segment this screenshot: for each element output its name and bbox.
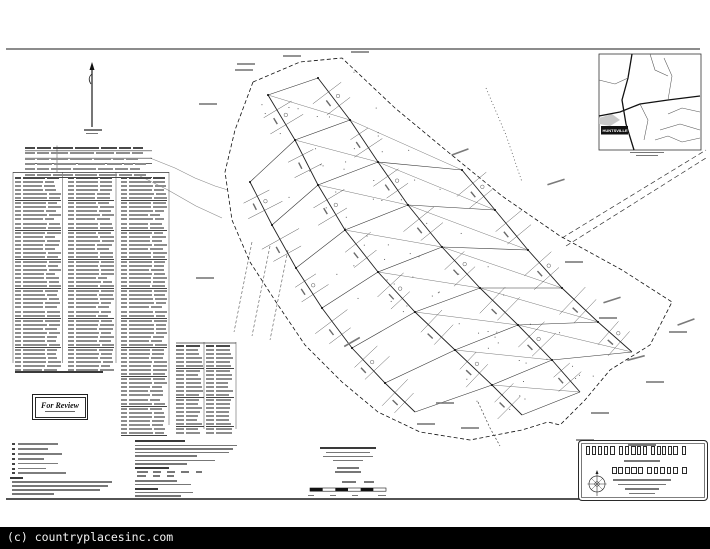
survey-data-table [15, 176, 61, 372]
table-cell-illegible [101, 320, 112, 322]
table-cell-illegible [129, 403, 152, 405]
table-cell-illegible [152, 420, 165, 422]
table-cell-illegible [129, 324, 154, 326]
table-cell-illegible [97, 244, 111, 246]
table-cell-illegible [15, 336, 21, 338]
table-cell-illegible [76, 185, 98, 187]
table-cell-illegible [15, 197, 21, 199]
table-cell-illegible [23, 298, 47, 300]
table-cell-illegible [15, 344, 21, 346]
table-cell-illegible [129, 420, 150, 422]
table-cell-illegible [216, 394, 229, 396]
table-cell-illegible [23, 306, 43, 308]
table-cell-illegible [23, 328, 43, 330]
table-cell-illegible [129, 223, 148, 225]
table-cell-illegible [121, 365, 127, 367]
table-cell-illegible [129, 244, 152, 246]
table-cell-illegible [23, 273, 44, 275]
table-cell-illegible [15, 218, 21, 220]
table-header-cell-illegible [176, 345, 184, 347]
table-cell-illegible [206, 428, 214, 430]
text-line-illegible [323, 456, 373, 458]
table-cell-illegible [76, 202, 96, 204]
table-cell-illegible [23, 302, 43, 304]
table-cell-illegible [156, 332, 167, 334]
table-cell-illegible [121, 311, 127, 313]
table-cell-illegible [15, 361, 21, 363]
table-cell-illegible [97, 248, 109, 250]
table-cell-illegible [76, 302, 99, 304]
table-cell-illegible [15, 252, 21, 254]
text-line-illegible [135, 440, 185, 442]
table-cell-illegible [150, 223, 162, 225]
table-cell-illegible [129, 378, 151, 380]
table-cell-illegible [25, 168, 35, 170]
for-review-stamp: For Review [32, 394, 88, 420]
table-cell-illegible [15, 189, 21, 191]
table-cell-illegible [216, 432, 232, 434]
table-cell-illegible [98, 277, 108, 279]
table-cell-illegible [129, 332, 154, 334]
table-cell-illegible [68, 265, 74, 267]
stamp-subtext-illegible [45, 411, 75, 412]
table-cell-illegible [70, 152, 93, 154]
table-cell-illegible [45, 302, 60, 304]
table-cell-illegible [76, 189, 98, 191]
table-cell-illegible [76, 357, 98, 359]
table-cell-illegible [51, 152, 69, 154]
table-cell-illegible [76, 227, 98, 229]
table-cell-illegible [68, 214, 74, 216]
table-cell-illegible [121, 328, 127, 330]
stamp-label: For Review [41, 402, 79, 410]
table-cell-illegible [23, 269, 47, 271]
table-cell-illegible [186, 349, 198, 351]
table-cell-illegible [186, 403, 198, 405]
survey-data-table [176, 344, 204, 435]
table-cell-illegible [49, 193, 61, 195]
table-cell-illegible [68, 256, 74, 258]
table-cell-illegible [129, 214, 148, 216]
table-cell-illegible [124, 163, 134, 165]
text-line-illegible [135, 452, 229, 454]
table-cell-illegible [129, 386, 150, 388]
table-header-cell-illegible [25, 147, 35, 149]
table-cell-illegible [76, 365, 99, 367]
table-cell-illegible [216, 428, 232, 430]
table-cell-illegible [206, 349, 214, 351]
table-cell-illegible [47, 294, 57, 296]
table-cell-illegible [100, 206, 114, 208]
table-cell-illegible [100, 227, 114, 229]
table-cell-illegible [68, 369, 74, 371]
table-cell-illegible [23, 244, 43, 246]
text-line-illegible [135, 448, 233, 450]
table-cell-illegible [206, 378, 214, 380]
table-cell-illegible [45, 236, 55, 238]
table-cell-illegible [156, 315, 165, 317]
table-cell-illegible [129, 320, 152, 322]
table-cell-illegible [23, 294, 45, 296]
table-cell-illegible [45, 218, 54, 220]
table-cell-illegible [51, 168, 71, 170]
table-cell-illegible [23, 281, 47, 283]
table-cell-illegible [48, 361, 61, 363]
table-cell-illegible [68, 223, 74, 225]
table-cell-illegible [176, 415, 184, 417]
table-cell-illegible [76, 290, 99, 292]
table-cell-illegible [129, 206, 151, 208]
table-cell-illegible [216, 365, 231, 367]
table-cell-illegible [186, 353, 199, 355]
table-cell-illegible [156, 328, 166, 330]
table-cell-illegible [37, 163, 52, 165]
table-cell-illegible [129, 361, 153, 363]
table-cell-illegible [48, 202, 57, 204]
table-cell-illegible [97, 193, 110, 195]
legend-item-text-illegible [18, 443, 58, 445]
table-cell-illegible [101, 273, 114, 275]
table-cell-illegible [23, 256, 45, 258]
table-cell-illegible [23, 227, 46, 229]
text-line-illegible [352, 495, 358, 496]
table-cell-illegible [176, 365, 184, 367]
table-cell-illegible [121, 285, 127, 287]
table-cell-illegible [76, 265, 99, 267]
table-cell-illegible [76, 353, 99, 355]
text-line-illegible [137, 471, 148, 473]
table-cell-illegible [121, 252, 127, 254]
table-cell-illegible [216, 411, 229, 413]
table-header-cell-illegible [75, 147, 99, 149]
table-cell-illegible [121, 256, 127, 258]
table-cell-illegible [23, 181, 43, 183]
table-cell-illegible [23, 357, 46, 359]
table-cell-illegible [15, 214, 21, 216]
table-cell-illegible [121, 306, 127, 308]
table-cell-illegible [129, 261, 152, 263]
table-cell-illegible [121, 349, 127, 351]
table-cell-illegible [68, 349, 74, 351]
table-cell-illegible [216, 403, 230, 405]
table-cell-illegible [129, 290, 152, 292]
table-cell-illegible [68, 248, 74, 250]
table-cell-illegible [156, 302, 166, 304]
table-cell-illegible [176, 378, 184, 380]
text-line-illegible [636, 155, 658, 156]
table-cell-illegible [121, 248, 127, 250]
table-cell-illegible [176, 370, 184, 372]
table-cell-illegible [68, 185, 74, 187]
table-cell-illegible [45, 306, 57, 308]
table-cell-illegible [76, 218, 95, 220]
table-cell-illegible [121, 386, 127, 388]
table-cell-illegible [150, 408, 162, 410]
table-cell-illegible [45, 248, 55, 250]
table-cell-illegible [206, 370, 214, 372]
table-cell-illegible [206, 386, 214, 388]
table-cell-illegible [49, 324, 60, 326]
table-cell-illegible [186, 365, 203, 367]
table-cell-illegible [15, 306, 21, 308]
table-cell-illegible [45, 290, 58, 292]
legend-item-number [12, 463, 15, 465]
table-cell-illegible [121, 218, 127, 220]
table-cell-illegible [47, 340, 56, 342]
table-cell-illegible [121, 290, 127, 292]
table-cell-illegible [186, 415, 198, 417]
table-cell-illegible [186, 390, 203, 392]
table-cell-illegible [101, 311, 110, 313]
table-cell-illegible [76, 236, 98, 238]
table-cell-illegible [23, 202, 46, 204]
table-cell-illegible [129, 412, 152, 414]
table-cell-illegible [121, 408, 127, 410]
text-line-illegible [181, 471, 189, 473]
table-cell-illegible [76, 197, 95, 199]
table-cell-illegible [76, 214, 100, 216]
text-line-illegible [196, 471, 202, 473]
text-line-illegible [330, 495, 336, 496]
table-cell-illegible [68, 320, 74, 322]
text-line-illegible [12, 481, 112, 483]
table-cell-illegible [216, 415, 229, 417]
table-cell-illegible [206, 361, 214, 363]
table-cell-illegible [102, 344, 114, 346]
text-line-illegible [10, 477, 23, 479]
table-cell-illegible [99, 210, 112, 212]
table-cell-illegible [68, 298, 74, 300]
table-cell-illegible [121, 206, 127, 208]
table-cell-illegible [121, 369, 127, 371]
table-cell-illegible [206, 365, 214, 367]
for-review-stamp-inner: For Review [35, 397, 86, 418]
table-cell-illegible [25, 163, 35, 165]
table-cell-illegible [100, 185, 112, 187]
table-cell-illegible [44, 369, 57, 371]
table-cell-illegible [129, 357, 149, 359]
table-cell-illegible [121, 197, 127, 199]
table-cell-illegible [129, 240, 150, 242]
table-cell-illegible [15, 227, 21, 229]
table-cell-illegible [23, 197, 47, 199]
table-cell-illegible [129, 340, 149, 342]
table-cell-illegible [154, 428, 166, 430]
table-cell-illegible [15, 294, 21, 296]
table-cell-illegible [186, 357, 202, 359]
table-cell-illegible [48, 265, 57, 267]
table-cell-illegible [153, 373, 166, 375]
legend-item [12, 468, 46, 470]
table-cell-illegible [101, 269, 114, 271]
table-cell-illegible [68, 294, 74, 296]
table-cell-illegible [153, 378, 166, 380]
table-cell-illegible [150, 227, 163, 229]
text-line-illegible [342, 481, 356, 483]
table-cell-illegible [68, 189, 74, 191]
table-cell-illegible [48, 227, 61, 229]
table-cell-illegible [121, 227, 127, 229]
table-cell-illegible [121, 189, 127, 191]
table-cell-illegible [155, 311, 167, 313]
table-cell-illegible [129, 382, 152, 384]
text-line-illegible [135, 495, 181, 497]
table-cell-illegible [129, 369, 151, 371]
text-line-illegible [167, 471, 175, 473]
legend-item-number [12, 448, 15, 450]
text-line-illegible [12, 489, 100, 491]
table-cell-illegible [129, 353, 150, 355]
table-cell-illegible [121, 269, 127, 271]
table-cell-illegible [126, 158, 138, 160]
table-header-cell-illegible [53, 147, 73, 149]
table-cell-illegible [15, 261, 21, 263]
table-cell-illegible [48, 357, 57, 359]
table-cell-illegible [186, 378, 201, 380]
table-cell-illegible [121, 353, 127, 355]
table-cell-illegible [15, 269, 21, 271]
table-cell-illegible [121, 261, 127, 263]
table-cell-illegible [101, 302, 112, 304]
table-cell-illegible [15, 256, 21, 258]
table-cell-illegible [76, 206, 98, 208]
table-cell-illegible [23, 261, 47, 263]
text-line-illegible [12, 493, 54, 495]
table-header-cell-illegible [133, 147, 143, 149]
table-cell-illegible [68, 218, 74, 220]
table-cell-illegible [129, 202, 151, 204]
table-cell-illegible [37, 158, 49, 160]
table-cell-illegible [15, 185, 21, 187]
table-cell-illegible [76, 281, 101, 283]
table-cell-illegible [216, 349, 230, 351]
table-cell-illegible [68, 285, 74, 287]
text-line-illegible [135, 467, 169, 469]
table-cell-illegible [216, 407, 230, 409]
table-cell-illegible [70, 158, 93, 160]
table-cell-illegible [23, 277, 44, 279]
table-cell-illegible [23, 324, 47, 326]
table-cell-illegible [206, 353, 214, 355]
table-cell-illegible [216, 374, 232, 376]
table-cell-illegible [76, 315, 96, 317]
table-header-cell-illegible [186, 345, 200, 347]
table-cell-illegible [15, 357, 21, 359]
table-cell-illegible [151, 357, 163, 359]
table-cell-illegible [15, 244, 21, 246]
table-cell-illegible [23, 236, 43, 238]
table-cell-illegible [15, 181, 21, 183]
table-cell-illegible [121, 277, 127, 279]
table-cell-illegible [121, 416, 127, 418]
table-cell-illegible [76, 223, 98, 225]
table-cell-illegible [15, 273, 21, 275]
table-cell-illegible [49, 269, 61, 271]
table-cell-illegible [176, 411, 184, 413]
table-cell-illegible [99, 294, 113, 296]
table-cell-illegible [153, 281, 166, 283]
table-cell-illegible [47, 365, 61, 367]
table-cell-illegible [129, 193, 154, 195]
table-cell-illegible [76, 336, 98, 338]
table-cell-illegible [76, 328, 97, 330]
table-header-cell-illegible [101, 147, 117, 149]
table-cell-illegible [47, 256, 57, 258]
table-cell-illegible [176, 349, 184, 351]
table-cell-illegible [25, 158, 35, 160]
table-cell-illegible [176, 432, 184, 434]
table-cell-illegible [68, 193, 74, 195]
table-cell-illegible [154, 265, 164, 267]
survey-data-table [121, 176, 167, 436]
table-cell-illegible [154, 403, 165, 405]
table-cell-illegible [76, 361, 101, 363]
table-cell-illegible [103, 281, 112, 283]
table-cell-illegible [49, 344, 60, 346]
table-cell-illegible [68, 353, 74, 355]
table-cell-illegible [37, 168, 49, 170]
table-cell-illegible [121, 336, 127, 338]
table-cell-illegible [216, 390, 233, 392]
table-cell-illegible [76, 193, 95, 195]
table-cell-illegible [68, 311, 74, 313]
table-cell-illegible [97, 218, 109, 220]
table-cell-illegible [68, 281, 74, 283]
table-cell-illegible [76, 269, 99, 271]
table-cell-illegible [121, 332, 127, 334]
table-cell-illegible [68, 357, 74, 359]
table-cell-illegible [54, 163, 76, 165]
text-line-illegible [364, 481, 374, 483]
table-row [206, 431, 234, 435]
table-cell-illegible [23, 252, 46, 254]
table-cell-illegible [15, 324, 21, 326]
table-cell-illegible [154, 261, 165, 263]
table-cell-illegible [186, 423, 202, 425]
table-cell-illegible [15, 240, 21, 242]
table-cell-illegible [129, 269, 149, 271]
table-cell-illegible [15, 340, 21, 342]
table-cell-illegible [121, 357, 127, 359]
legend-item-text-illegible [18, 468, 46, 470]
text-line-illegible [153, 471, 161, 473]
text-line-illegible [335, 471, 361, 473]
table-cell-illegible [121, 320, 127, 322]
table-cell-illegible [23, 332, 47, 334]
table-cell-illegible [76, 344, 100, 346]
text-line-illegible [135, 492, 193, 494]
table-cell-illegible [94, 158, 111, 160]
table-cell-illegible [15, 210, 21, 212]
table-cell-illegible [121, 394, 127, 396]
table-cell-illegible [76, 285, 98, 287]
text-line-illegible [137, 475, 146, 477]
table-cell-illegible [23, 265, 46, 267]
table-cell-illegible [129, 210, 153, 212]
table-cell-illegible [100, 189, 112, 191]
table-cell-illegible [132, 152, 143, 154]
table-cell-illegible [15, 202, 21, 204]
table-cell-illegible [15, 236, 21, 238]
table-cell-illegible [15, 223, 21, 225]
table-cell-illegible [176, 361, 184, 363]
table-cell-illegible [23, 315, 45, 317]
table-cell-illegible [155, 344, 167, 346]
legend-item-text-illegible [18, 472, 66, 474]
table-cell-illegible [176, 407, 184, 409]
table-cell-illegible [154, 382, 167, 384]
table-cell-illegible [96, 152, 114, 154]
